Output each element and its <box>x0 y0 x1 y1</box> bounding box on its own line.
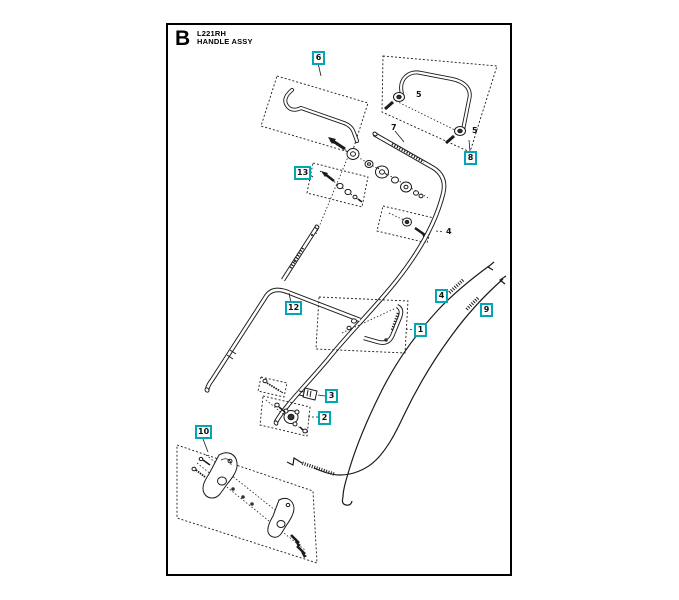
callout-item-9[interactable]: 9 <box>480 303 493 317</box>
clip-screw-box <box>258 377 287 397</box>
callout-item-2[interactable]: 2 <box>318 411 331 425</box>
bail-knob-rear <box>446 127 466 144</box>
drive-lever-box <box>316 297 414 353</box>
callout-item-8[interactable]: 8 <box>464 151 477 165</box>
callout-item-13[interactable]: 13 <box>294 166 311 180</box>
callout-item-3[interactable]: 3 <box>325 389 338 403</box>
lower-handle-tube <box>204 290 360 393</box>
callout-item-4[interactable]: 4 <box>435 289 448 303</box>
handle-rod-box <box>261 63 368 153</box>
bracket-kit-box <box>177 439 317 563</box>
callout-item-10[interactable]: 10 <box>195 425 212 439</box>
label-item-7: 7 <box>391 123 397 132</box>
knob-washer-stack <box>316 137 430 234</box>
bail-knob-front <box>385 93 405 110</box>
label-item-5b: 5 <box>472 126 478 135</box>
bracket-plate-right <box>268 498 294 537</box>
callout-item-12[interactable]: 12 <box>285 301 302 315</box>
callout-item-6[interactable]: 6 <box>312 51 325 65</box>
upper-handle-left-leg <box>283 224 320 280</box>
label-item-5a: 5 <box>416 90 422 99</box>
label-item-4: 4 <box>446 227 452 236</box>
parts-diagram-page: B L221RH HANDLE ASSY <box>0 0 679 600</box>
exploded-view-drawing <box>0 0 679 600</box>
hardware-kit-box <box>307 163 368 207</box>
callout-item-1[interactable]: 1 <box>414 323 427 337</box>
bolt-arrow <box>328 137 345 149</box>
control-bail-box <box>382 56 497 152</box>
bracket-plate-left <box>203 453 237 498</box>
